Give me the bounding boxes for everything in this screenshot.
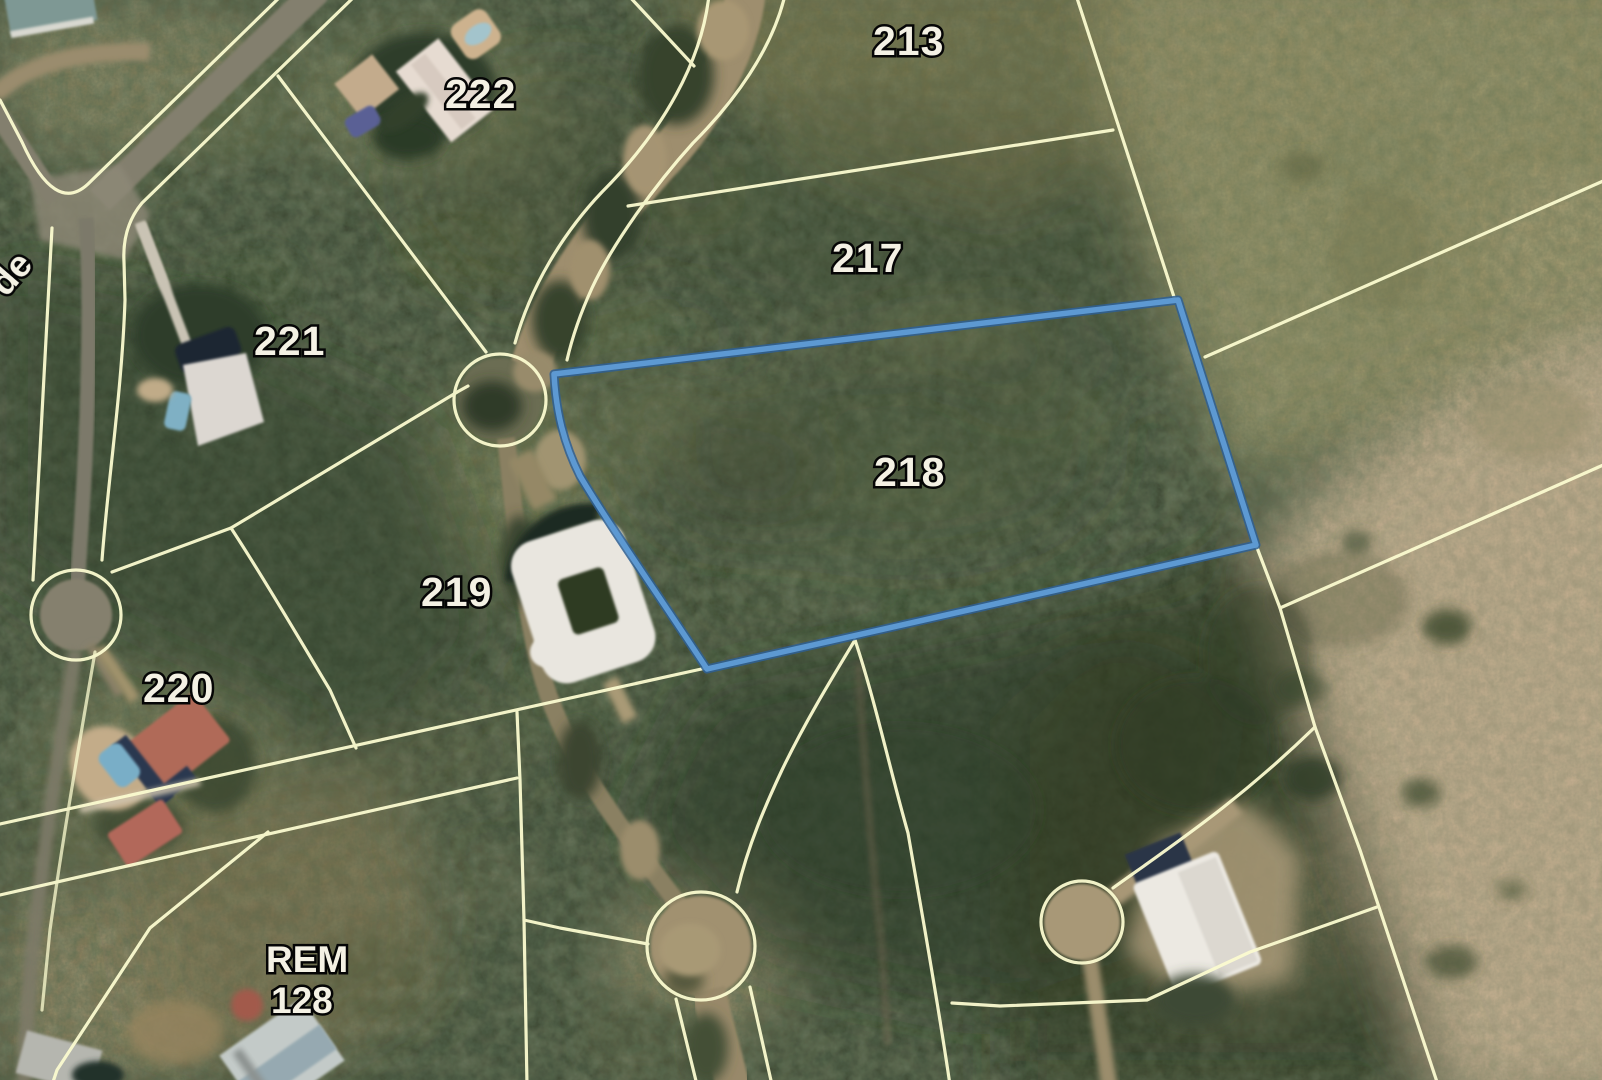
svg-text:219: 219 — [421, 569, 492, 615]
svg-text:220: 220 — [143, 665, 214, 711]
svg-text:222: 222 — [445, 71, 516, 117]
svg-text:218: 218 — [874, 449, 945, 495]
svg-text:221: 221 — [254, 318, 325, 364]
svg-text:REM: REM — [266, 939, 348, 980]
svg-text:128: 128 — [271, 980, 333, 1021]
svg-text:213: 213 — [873, 18, 944, 64]
svg-text:217: 217 — [832, 235, 903, 281]
